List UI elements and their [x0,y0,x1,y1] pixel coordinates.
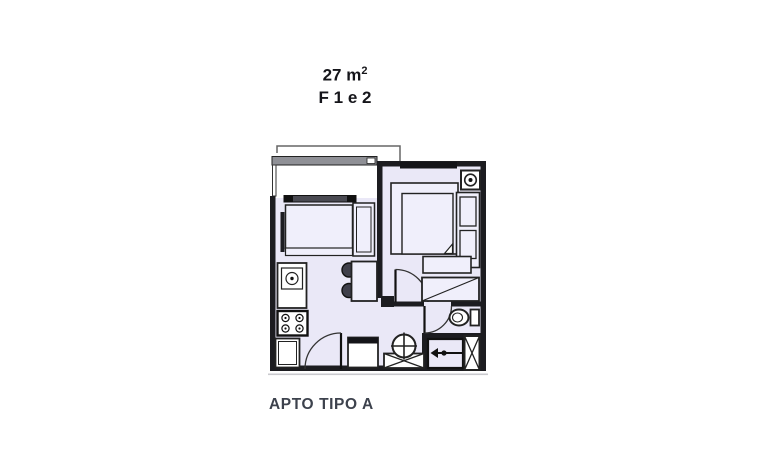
entrance [428,336,480,370]
toilet [450,310,480,326]
sofa-armrest [281,212,285,252]
kitchen-sink [278,263,307,308]
sofa [281,203,375,256]
stove [278,311,308,336]
ceiling-spot-icon [461,171,480,190]
floor-plan-svg [0,0,768,472]
balcony-side-rail [273,165,277,196]
floor-plan-page: 27 m2 F 1 e 2 [0,0,768,472]
ground-shadow-line [268,374,488,376]
bed [391,183,458,254]
dining-table [352,262,378,302]
entry-door [465,336,480,370]
kitchen-cabinet [276,339,300,368]
washer [348,338,378,368]
plan-caption: APTO TIPO A [269,396,374,414]
balcony-railing [272,157,377,166]
bed-bench [423,257,471,274]
closet [422,278,479,302]
bedroom-window [400,162,457,169]
living-window [284,196,356,203]
railing-end-cap [367,158,375,164]
